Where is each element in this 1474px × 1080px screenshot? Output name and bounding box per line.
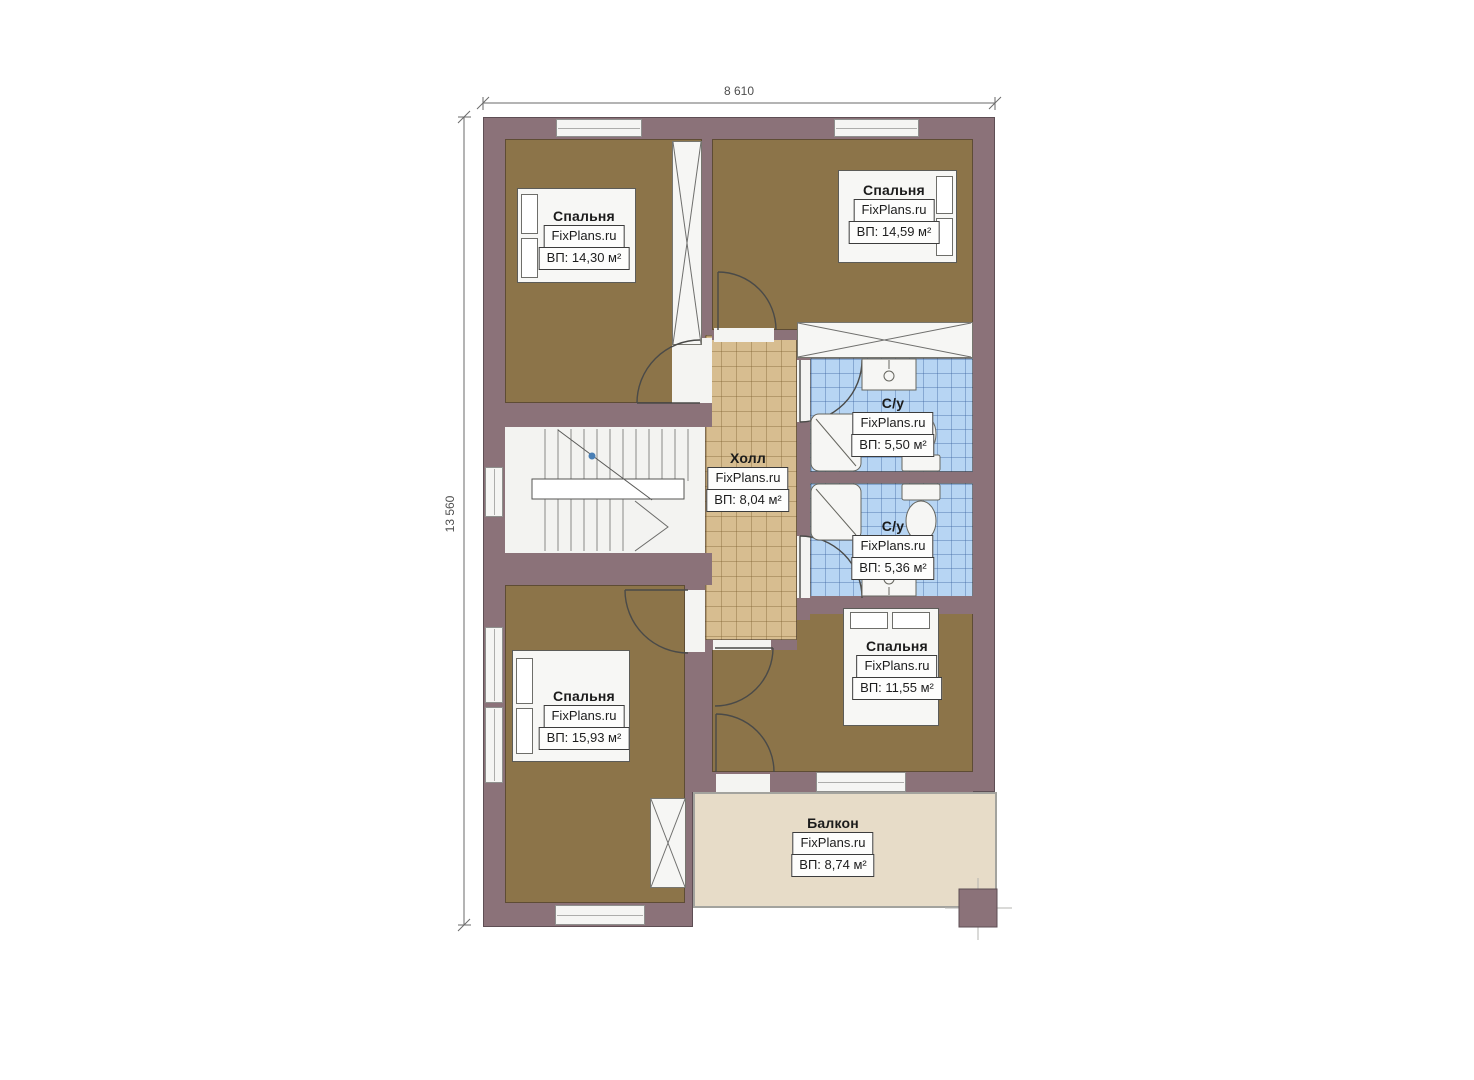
wardrobe-tall-column: [672, 141, 702, 345]
room-label-bedroom-bl: Спальня FixPlans.ru ВП: 15,93 м²: [539, 688, 630, 750]
pillow: [850, 612, 888, 629]
room-name: Спальня: [866, 638, 928, 654]
door-gap-bath-top: [797, 360, 810, 422]
window-left-stairs: [485, 467, 503, 517]
door-gap-bedroom-tr: [714, 328, 774, 342]
room-label-bedroom-tl: Спальня FixPlans.ru ВП: 14,30 м²: [539, 208, 630, 270]
room-label-bath-bottom: С/у FixPlans.ru ВП: 5,36 м²: [851, 518, 934, 580]
room-label-bedroom-tr: Спальня FixPlans.ru ВП: 14,59 м²: [849, 182, 940, 244]
room-area: ВП: 8,04 м²: [706, 489, 789, 512]
wall-tl-stairs: [505, 403, 712, 427]
window-top-right: [834, 119, 919, 137]
room-area: ВП: 14,59 м²: [849, 221, 940, 244]
room-label-hall: Холл FixPlans.ru ВП: 8,04 м²: [706, 450, 789, 512]
room-area: ВП: 11,55 м²: [852, 677, 942, 700]
wall-bath-divider: [810, 472, 973, 483]
room-brand: FixPlans.ru: [852, 535, 933, 558]
room-area: ВП: 15,93 м²: [539, 727, 630, 750]
room-area: ВП: 8,74 м²: [791, 854, 874, 877]
room-brand: FixPlans.ru: [853, 199, 934, 222]
room-area: ВП: 5,50 м²: [851, 434, 934, 457]
pillow: [516, 658, 533, 704]
pillow: [521, 238, 538, 278]
floor-plan-canvas: Спальня FixPlans.ru ВП: 14,30 м² Спальня…: [0, 0, 1474, 1080]
door-gap-bath-bottom: [797, 536, 810, 598]
room-label-balcony: Балкон FixPlans.ru ВП: 8,74 м²: [791, 815, 874, 877]
door-nook-tl: [672, 345, 702, 403]
wardrobe-bedroom-bl: [650, 798, 686, 888]
room-name: Спальня: [553, 688, 615, 704]
dimension-height-label: 13 560: [443, 496, 457, 533]
room-brand: FixPlans.ru: [852, 412, 933, 435]
dimension-width-label: 8 610: [724, 84, 754, 98]
pillow: [516, 708, 533, 754]
window-left-bl-2: [485, 707, 503, 783]
room-label-bedroom-br: Спальня FixPlans.ru ВП: 11,55 м²: [852, 638, 942, 700]
room-name: Балкон: [807, 815, 859, 831]
room-name: Холл: [730, 450, 766, 466]
room-brand: FixPlans.ru: [543, 705, 624, 728]
window-left-bl-1: [485, 627, 503, 703]
door-gap-bedroom-bl: [685, 590, 705, 652]
room-brand: FixPlans.ru: [543, 225, 624, 248]
room-brand: FixPlans.ru: [856, 655, 937, 678]
room-name: С/у: [882, 518, 904, 534]
wall-stairs-bl: [505, 553, 712, 585]
room-name: С/у: [882, 395, 904, 411]
room-label-bath-top: С/у FixPlans.ru ВП: 5,50 м²: [851, 395, 934, 457]
window-top-left: [556, 119, 642, 137]
door-gap-bedroom-br: [713, 640, 771, 650]
room-brand: FixPlans.ru: [792, 832, 873, 855]
room-brand: FixPlans.ru: [707, 467, 788, 490]
room-name: Спальня: [553, 208, 615, 224]
pillow: [892, 612, 930, 629]
window-br-balcony: [816, 772, 906, 792]
wardrobe-strip-bath: [797, 322, 973, 358]
door-gap-balcony: [716, 774, 770, 792]
room-area: ВП: 14,30 м²: [539, 247, 630, 270]
window-bottom-bl: [555, 905, 645, 925]
staircase-area: [505, 427, 705, 553]
room-area: ВП: 5,36 м²: [851, 557, 934, 580]
room-name: Спальня: [863, 182, 925, 198]
pillow: [521, 194, 538, 234]
